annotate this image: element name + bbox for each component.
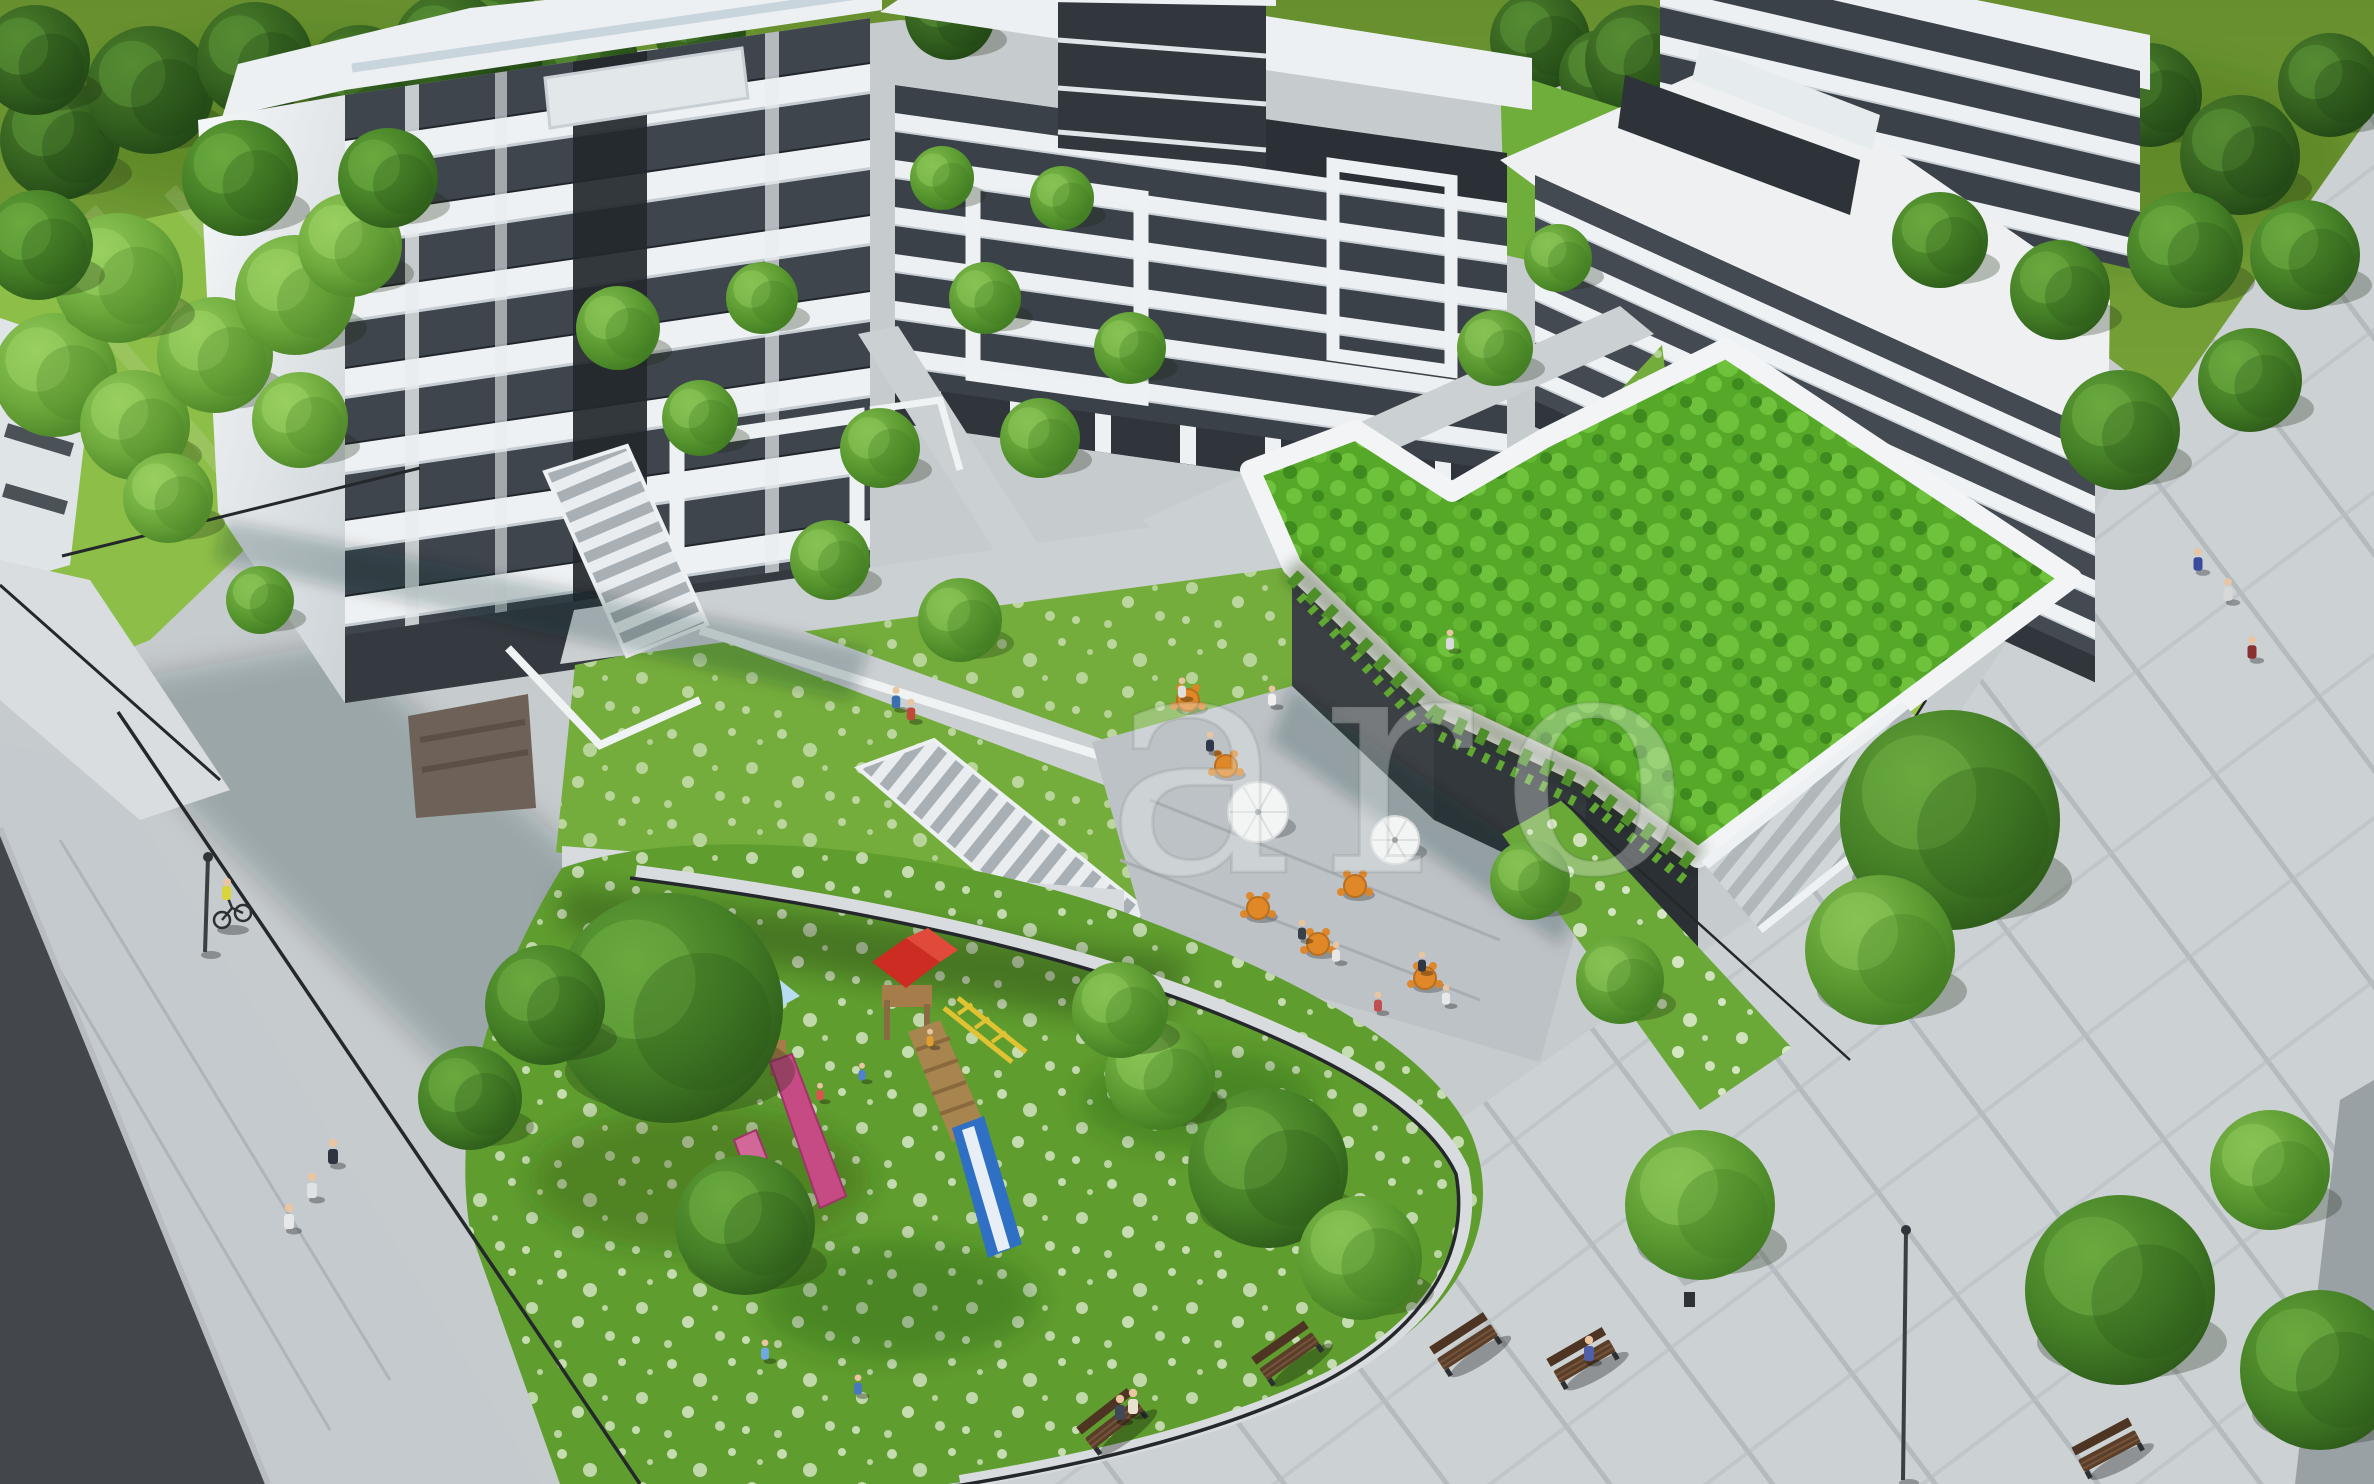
watermark-text: aro bbox=[1105, 577, 1716, 947]
aerial-render-canvas: aro bbox=[0, 0, 2374, 1484]
scene-svg: aro bbox=[0, 0, 2374, 1484]
waste-bin bbox=[1684, 1292, 1695, 1307]
